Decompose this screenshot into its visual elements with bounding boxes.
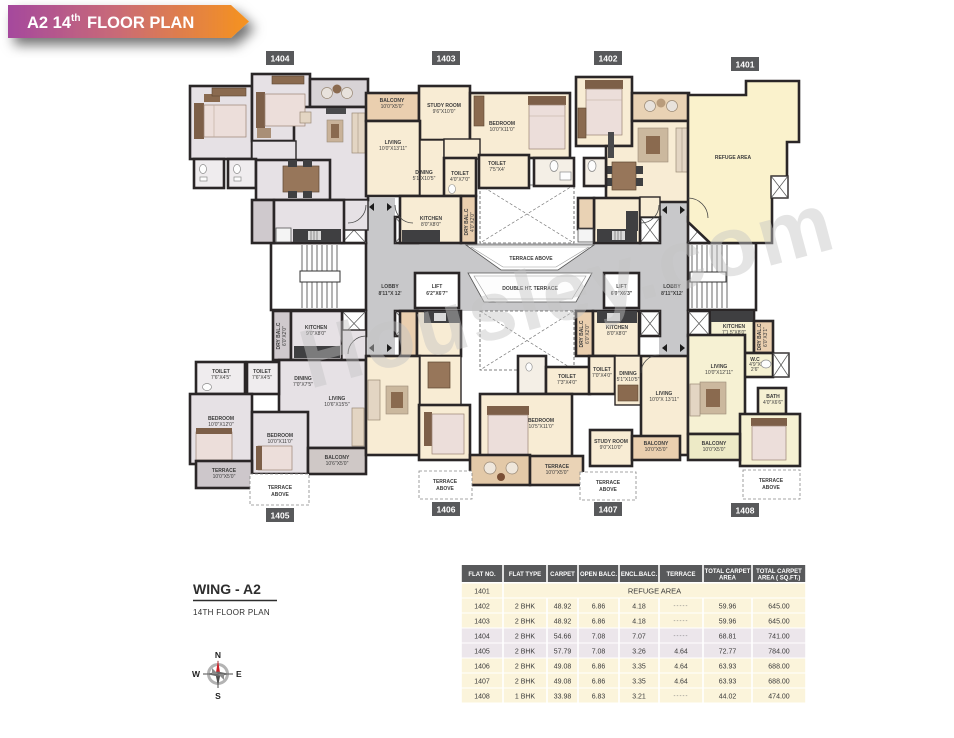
svg-text:1403: 1403 [437,54,456,64]
svg-text:4'0"X6'6": 4'0"X6'6" [763,400,783,406]
svg-text:6'0"X3'1": 6'0"X3'1" [763,327,769,347]
svg-text:CARPET: CARPET [550,572,575,578]
svg-text:63.93: 63.93 [719,664,737,671]
svg-text:10'0"X11'0": 10'0"X11'0" [267,439,292,445]
svg-text:2 BHK: 2 BHK [515,664,536,671]
svg-text:48.92: 48.92 [554,604,572,611]
svg-text:th: th [71,13,80,24]
svg-text:W: W [192,669,201,679]
svg-text:474.00: 474.00 [768,694,790,701]
svg-text:TERRACE: TERRACE [596,480,621,486]
svg-text:ENCL.BALC.: ENCL.BALC. [621,572,658,578]
svg-text:688.00: 688.00 [768,679,790,686]
svg-text:59.96: 59.96 [719,604,737,611]
svg-text:N: N [215,650,221,660]
svg-text:1401: 1401 [474,589,490,596]
svg-text:6.83: 6.83 [592,694,606,701]
svg-text:2 BHK: 2 BHK [515,634,536,641]
svg-text:-----: ----- [674,694,689,700]
svg-text:49.08: 49.08 [554,679,572,686]
svg-text:-----: ----- [674,619,689,625]
svg-text:1406: 1406 [437,505,456,515]
svg-text:7'3"X4'0": 7'3"X4'0" [557,380,577,386]
svg-text:ABOVE: ABOVE [436,486,454,492]
svg-text:1407: 1407 [474,679,490,686]
svg-text:1404: 1404 [271,54,290,64]
svg-text:TOTAL CARPET: TOTAL CARPET [756,569,802,575]
svg-text:10'0"X5'0": 10'0"X5'0" [703,447,726,453]
svg-text:8'0"X8'0": 8'0"X8'0" [607,331,627,337]
svg-text:72.77: 72.77 [719,649,737,656]
svg-text:FLOOR PLAN: FLOOR PLAN [87,14,194,32]
svg-text:6.86: 6.86 [592,679,606,686]
svg-text:TERRACE: TERRACE [433,479,458,485]
svg-text:TERRACE: TERRACE [759,478,784,484]
svg-text:6.86: 6.86 [592,604,606,611]
svg-text:ABOVE: ABOVE [599,487,617,493]
svg-text:2 BHK: 2 BHK [515,619,536,626]
svg-text:AREA: AREA [719,576,737,582]
svg-text:S: S [215,691,221,701]
svg-text:7.08: 7.08 [592,634,606,641]
svg-text:9'6"X10'0": 9'6"X10'0" [433,109,456,115]
svg-text:4.18: 4.18 [632,619,646,626]
svg-text:1406: 1406 [474,664,490,671]
svg-text:5'1"X10'5": 5'1"X10'5" [617,377,640,383]
svg-text:9'0"X10'0": 9'0"X10'0" [600,445,623,451]
svg-text:645.00: 645.00 [768,619,790,626]
svg-text:10'0"X5'0": 10'0"X5'0" [546,470,569,476]
svg-text:1408: 1408 [474,694,490,701]
svg-text:10'0"X12'0": 10'0"X12'0" [208,422,234,428]
svg-text:7'6"X4'5": 7'6"X4'5" [211,375,231,381]
svg-text:1408: 1408 [736,506,755,516]
svg-text:2 BHK: 2 BHK [515,604,536,611]
svg-text:10'0"X13'11": 10'0"X13'11" [379,146,407,152]
svg-text:10'0"X5'0": 10'0"X5'0" [645,447,668,453]
svg-text:10'0"X5'0": 10'0"X5'0" [381,104,404,110]
svg-text:10'0"X12'11": 10'0"X12'11" [705,370,733,376]
svg-text:4.64: 4.64 [674,649,688,656]
svg-text:1402: 1402 [599,54,618,64]
svg-text:4.64: 4.64 [674,679,688,686]
svg-text:1404: 1404 [474,634,490,641]
svg-text:ABOVE: ABOVE [271,492,289,498]
svg-text:TOTAL CARPET: TOTAL CARPET [705,569,751,575]
svg-text:7'5"X4': 7'5"X4' [489,167,504,173]
svg-text:7'0"X4'0": 7'0"X4'0" [592,373,612,379]
svg-text:1407: 1407 [599,505,618,515]
svg-text:3.26: 3.26 [632,649,646,656]
svg-text:3.21: 3.21 [632,694,646,701]
svg-text:68.81: 68.81 [719,634,737,641]
svg-text:1402: 1402 [474,604,490,611]
svg-text:14TH FLOOR PLAN: 14TH FLOOR PLAN [193,608,270,617]
svg-text:6.86: 6.86 [592,619,606,626]
svg-text:10'5"X11'0": 10'5"X11'0" [528,424,553,430]
svg-text:A2 14: A2 14 [27,14,72,32]
svg-text:49.08: 49.08 [554,664,572,671]
svg-text:REFUGE AREA: REFUGE AREA [628,587,681,596]
svg-text:645.00: 645.00 [768,604,790,611]
svg-text:10'0"X 13'11": 10'0"X 13'11" [649,397,679,403]
svg-text:54.66: 54.66 [554,634,572,641]
svg-text:1405: 1405 [474,649,490,656]
svg-text:TERRACE: TERRACE [666,572,695,578]
svg-text:E: E [236,669,242,679]
svg-text:7'6"X4'5": 7'6"X4'5" [252,375,272,381]
svg-text:48.92: 48.92 [554,619,572,626]
svg-text:10'0"X11'0": 10'0"X11'0" [489,127,514,133]
svg-text:688.00: 688.00 [768,664,790,671]
svg-text:4'0"X2'0": 4'0"X2'0" [470,212,476,232]
svg-text:3.35: 3.35 [632,679,646,686]
svg-text:57.79: 57.79 [554,649,572,656]
svg-text:741.00: 741.00 [768,634,790,641]
svg-text:1403: 1403 [474,619,490,626]
svg-text:6'0"X2'0": 6'0"X2'0" [282,326,288,346]
svg-text:10'0"X5'0": 10'0"X5'0" [213,474,236,480]
svg-text:FLAT NO.: FLAT NO. [468,572,496,578]
svg-text:4.64: 4.64 [674,664,688,671]
svg-text:FLAT TYPE: FLAT TYPE [509,572,541,578]
svg-text:63.93: 63.93 [719,679,737,686]
svg-text:2 BHK: 2 BHK [515,649,536,656]
svg-text:4'0"X7'0": 4'0"X7'0" [450,177,470,183]
svg-text:7.08: 7.08 [592,649,606,656]
svg-text:784.00: 784.00 [768,649,790,656]
svg-text:WING - A2: WING - A2 [193,581,261,597]
svg-text:1 BHK: 1 BHK [515,694,536,701]
svg-text:3.35: 3.35 [632,664,646,671]
svg-text:2 BHK: 2 BHK [515,679,536,686]
svg-text:-----: ----- [674,634,689,640]
svg-text:1405: 1405 [271,511,290,521]
svg-text:REFUGE AREA: REFUGE AREA [715,155,752,161]
svg-text:2'6": 2'6" [751,367,760,373]
svg-text:10'6"X15'5": 10'6"X15'5" [324,402,350,408]
svg-text:44.02: 44.02 [719,694,737,701]
svg-text:1401: 1401 [736,60,755,70]
svg-text:4.18: 4.18 [632,604,646,611]
svg-text:-----: ----- [674,604,689,610]
svg-text:AREA ( SQ.FT.): AREA ( SQ.FT.) [758,576,801,582]
svg-text:59.96: 59.96 [719,619,737,626]
svg-text:8'0"X8'0": 8'0"X8'0" [421,222,441,228]
svg-text:5'1"X10'5": 5'1"X10'5" [413,176,436,182]
svg-text:33.98: 33.98 [554,694,572,701]
svg-text:TERRACE: TERRACE [268,485,293,491]
svg-text:7.07: 7.07 [632,634,646,641]
svg-text:6.86: 6.86 [592,664,606,671]
svg-text:10'6"X5'0": 10'6"X5'0" [326,461,349,467]
svg-text:OPEN BALC.: OPEN BALC. [580,572,617,578]
svg-text:ABOVE: ABOVE [762,485,780,491]
